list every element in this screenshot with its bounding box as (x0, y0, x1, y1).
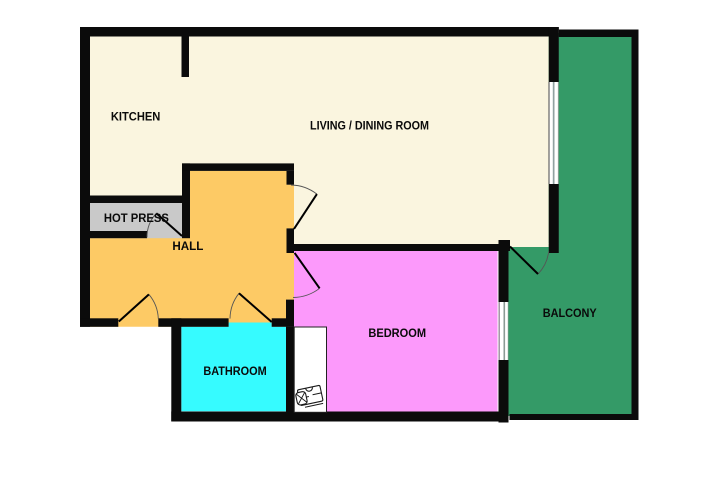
svg-text:LIVING / DINING ROOM: LIVING / DINING ROOM (310, 119, 429, 132)
svg-text:HALL: HALL (172, 240, 203, 253)
svg-text:KITCHEN: KITCHEN (111, 110, 161, 123)
svg-text:BEDROOM: BEDROOM (368, 327, 426, 340)
svg-text:BALCONY: BALCONY (543, 307, 597, 320)
svg-text:BATHROOM: BATHROOM (203, 365, 266, 378)
svg-text:HOT PRESS: HOT PRESS (104, 212, 169, 225)
